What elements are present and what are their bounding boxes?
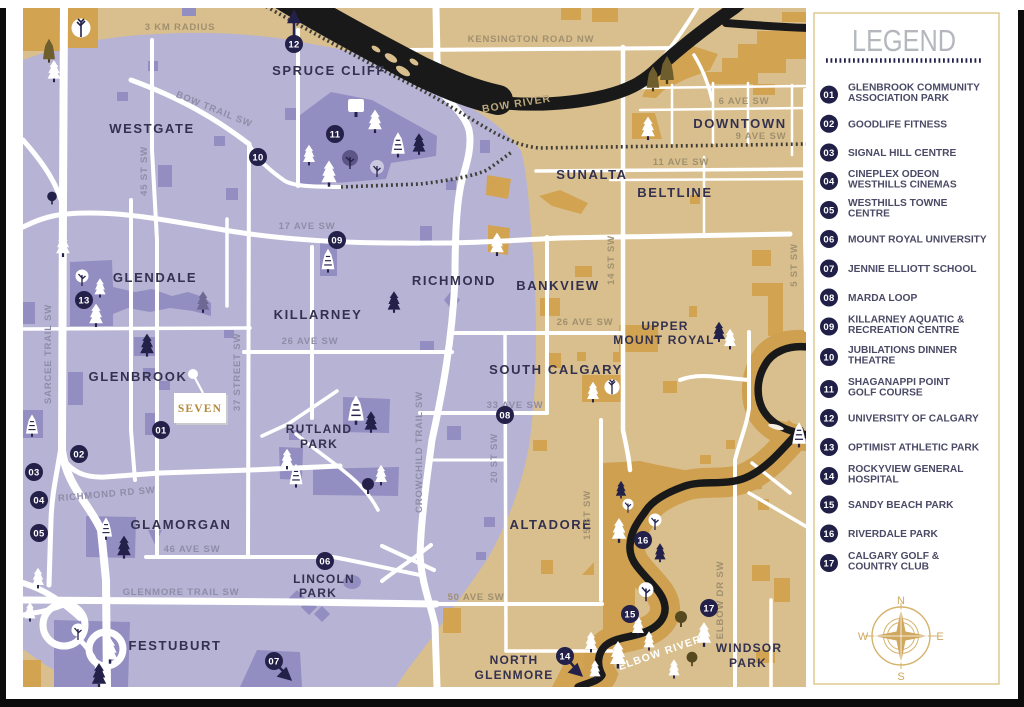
- svg-text:07: 07: [823, 264, 834, 275]
- svg-text:02: 02: [823, 119, 834, 130]
- svg-text:OPTIMIST ATHLETIC PARK: OPTIMIST ATHLETIC PARK: [848, 443, 980, 454]
- svg-text:W: W: [858, 631, 869, 643]
- svg-text:5 ST SW: 5 ST SW: [789, 243, 800, 287]
- svg-text:RICHMOND: RICHMOND: [412, 273, 496, 288]
- svg-text:CROWCHILD TRAIL SW: CROWCHILD TRAIL SW: [414, 391, 425, 513]
- svg-text:10: 10: [823, 352, 834, 363]
- svg-text:MOUNT ROYAL UNIVERSITY: MOUNT ROYAL UNIVERSITY: [848, 235, 987, 246]
- svg-text:13: 13: [823, 442, 834, 453]
- svg-text:09: 09: [823, 322, 834, 333]
- svg-text:06: 06: [823, 234, 834, 245]
- svg-text:46 AVE SW: 46 AVE SW: [164, 544, 221, 555]
- svg-text:COUNTRY CLUB: COUNTRY CLUB: [848, 562, 929, 573]
- svg-text:JENNIE ELLIOTT SCHOOL: JENNIE ELLIOTT SCHOOL: [848, 264, 976, 275]
- svg-text:33 AVE SW: 33 AVE SW: [487, 400, 544, 411]
- svg-text:SARCEE TRAIL SW: SARCEE TRAIL SW: [43, 304, 54, 404]
- svg-text:37 STREET SW: 37 STREET SW: [232, 333, 243, 411]
- svg-text:09: 09: [331, 235, 342, 246]
- svg-text:03: 03: [823, 148, 834, 159]
- svg-text:08: 08: [823, 293, 834, 304]
- svg-text:08: 08: [499, 410, 510, 421]
- svg-text:15: 15: [823, 500, 835, 511]
- svg-text:06: 06: [319, 556, 330, 567]
- svg-text:THEATRE: THEATRE: [848, 356, 896, 367]
- svg-text:WESTGATE: WESTGATE: [109, 121, 195, 136]
- svg-text:ELBOW DR SW: ELBOW DR SW: [715, 561, 726, 639]
- svg-text:MOUNT ROYAL: MOUNT ROYAL: [613, 333, 714, 347]
- svg-text:E: E: [936, 631, 943, 643]
- svg-text:JUBILATIONS DINNER: JUBILATIONS DINNER: [848, 345, 958, 356]
- svg-text:07: 07: [268, 656, 279, 667]
- svg-text:17: 17: [703, 603, 714, 614]
- svg-text:GLENMORE: GLENMORE: [475, 668, 554, 682]
- svg-text:14 ST SW: 14 ST SW: [606, 235, 617, 285]
- svg-text:20 ST SW: 20 ST SW: [489, 433, 500, 483]
- svg-text:FESTUBURT: FESTUBURT: [128, 638, 221, 653]
- svg-text:14: 14: [823, 471, 835, 482]
- svg-text:PARK: PARK: [300, 437, 338, 451]
- svg-text:WINDSOR: WINDSOR: [716, 641, 782, 655]
- svg-text:SUNALTA: SUNALTA: [556, 167, 627, 182]
- svg-text:50 AVE SW: 50 AVE SW: [448, 592, 505, 603]
- svg-text:S: S: [897, 671, 904, 683]
- svg-text:UNIVERSITY OF CALGARY: UNIVERSITY OF CALGARY: [848, 414, 979, 425]
- svg-text:ALTADORE: ALTADORE: [509, 517, 592, 532]
- svg-text:45 ST SW: 45 ST SW: [139, 146, 150, 196]
- svg-text:26 AVE SW: 26 AVE SW: [557, 317, 614, 328]
- svg-text:KILLARNEY: KILLARNEY: [274, 307, 363, 322]
- svg-text:RECREATION CENTRE: RECREATION CENTRE: [848, 325, 960, 336]
- svg-text:16: 16: [823, 529, 834, 540]
- svg-text:02: 02: [73, 449, 84, 460]
- svg-text:PARK: PARK: [299, 586, 337, 600]
- svg-text:11 AVE SW: 11 AVE SW: [653, 157, 709, 168]
- svg-text:03: 03: [28, 467, 39, 478]
- svg-text:11: 11: [824, 384, 835, 395]
- svg-text:DOWNTOWN: DOWNTOWN: [693, 116, 786, 131]
- svg-text:16: 16: [637, 535, 648, 546]
- svg-text:LEGEND: LEGEND: [852, 23, 956, 58]
- svg-text:CALGARY GOLF &: CALGARY GOLF &: [848, 551, 940, 562]
- svg-text:SANDY BEACH PARK: SANDY BEACH PARK: [848, 500, 954, 511]
- svg-text:14: 14: [559, 651, 571, 662]
- svg-text:04: 04: [33, 495, 45, 506]
- svg-text:GLENBROOK: GLENBROOK: [89, 369, 188, 384]
- svg-text:CENTRE: CENTRE: [848, 209, 890, 220]
- svg-text:RIVERDALE PARK: RIVERDALE PARK: [848, 529, 938, 540]
- svg-text:3 KM RADIUS: 3 KM RADIUS: [145, 22, 216, 33]
- svg-text:GLENBROOK COMMUNITY: GLENBROOK COMMUNITY: [848, 83, 980, 94]
- svg-text:10: 10: [252, 152, 263, 163]
- svg-text:PARK: PARK: [729, 656, 767, 670]
- svg-text:GLENDALE: GLENDALE: [113, 270, 197, 285]
- svg-text:BANKVIEW: BANKVIEW: [516, 278, 600, 293]
- svg-text:BELTLINE: BELTLINE: [637, 185, 712, 200]
- svg-text:05: 05: [33, 528, 45, 539]
- svg-text:12: 12: [288, 39, 299, 50]
- svg-text:17 AVE SW: 17 AVE SW: [279, 221, 336, 232]
- svg-text:17: 17: [823, 558, 834, 569]
- svg-text:WESTHILLS TOWNE: WESTHILLS TOWNE: [848, 198, 948, 209]
- svg-text:KENSINGTON ROAD NW: KENSINGTON ROAD NW: [468, 34, 595, 45]
- svg-text:N: N: [897, 595, 905, 607]
- svg-text:HOSPITAL: HOSPITAL: [848, 475, 899, 486]
- svg-text:RUTLAND: RUTLAND: [286, 422, 352, 436]
- svg-text:CINEPLEX ODEON: CINEPLEX ODEON: [848, 169, 939, 180]
- svg-text:MARDA LOOP: MARDA LOOP: [848, 293, 917, 304]
- svg-text:GOLF COURSE: GOLF COURSE: [848, 388, 923, 399]
- svg-text:9 AVE SW: 9 AVE SW: [736, 131, 787, 142]
- svg-text:13: 13: [78, 295, 89, 306]
- svg-text:26 AVE SW: 26 AVE SW: [282, 336, 339, 347]
- svg-text:SIGNAL HILL CENTRE: SIGNAL HILL CENTRE: [848, 148, 957, 159]
- svg-text:WESTHILLS CINEMAS: WESTHILLS CINEMAS: [848, 180, 957, 191]
- svg-text:GLAMORGAN: GLAMORGAN: [130, 517, 231, 532]
- svg-text:ROCKYVIEW GENERAL: ROCKYVIEW GENERAL: [848, 464, 963, 475]
- svg-text:GOODLIFE FITNESS: GOODLIFE FITNESS: [848, 119, 947, 130]
- svg-text:SEVEN: SEVEN: [178, 403, 222, 415]
- svg-text:04: 04: [823, 176, 835, 187]
- svg-text:05: 05: [823, 205, 835, 216]
- svg-text:SPRUCE CLIFF: SPRUCE CLIFF: [272, 63, 386, 78]
- svg-text:NORTH: NORTH: [490, 653, 539, 667]
- svg-text:01: 01: [823, 90, 835, 101]
- svg-text:UPPER: UPPER: [641, 319, 688, 333]
- svg-text:GLENMORE TRAIL SW: GLENMORE TRAIL SW: [123, 587, 240, 598]
- svg-text:11: 11: [330, 129, 341, 140]
- svg-text:01: 01: [155, 425, 167, 436]
- svg-text:15: 15: [624, 609, 636, 620]
- svg-text:LINCOLN: LINCOLN: [293, 572, 355, 586]
- svg-text:15 ST SW: 15 ST SW: [582, 490, 593, 540]
- svg-text:SHAGANAPPI POINT: SHAGANAPPI POINT: [848, 377, 951, 388]
- svg-text:6 AVE SW: 6 AVE SW: [719, 96, 770, 107]
- svg-text:ASSOCIATION PARK: ASSOCIATION PARK: [848, 93, 950, 104]
- svg-text:KILLARNEY AQUATIC &: KILLARNEY AQUATIC &: [848, 315, 965, 326]
- svg-text:SOUTH CALGARY: SOUTH CALGARY: [489, 362, 623, 377]
- svg-text:12: 12: [823, 413, 834, 424]
